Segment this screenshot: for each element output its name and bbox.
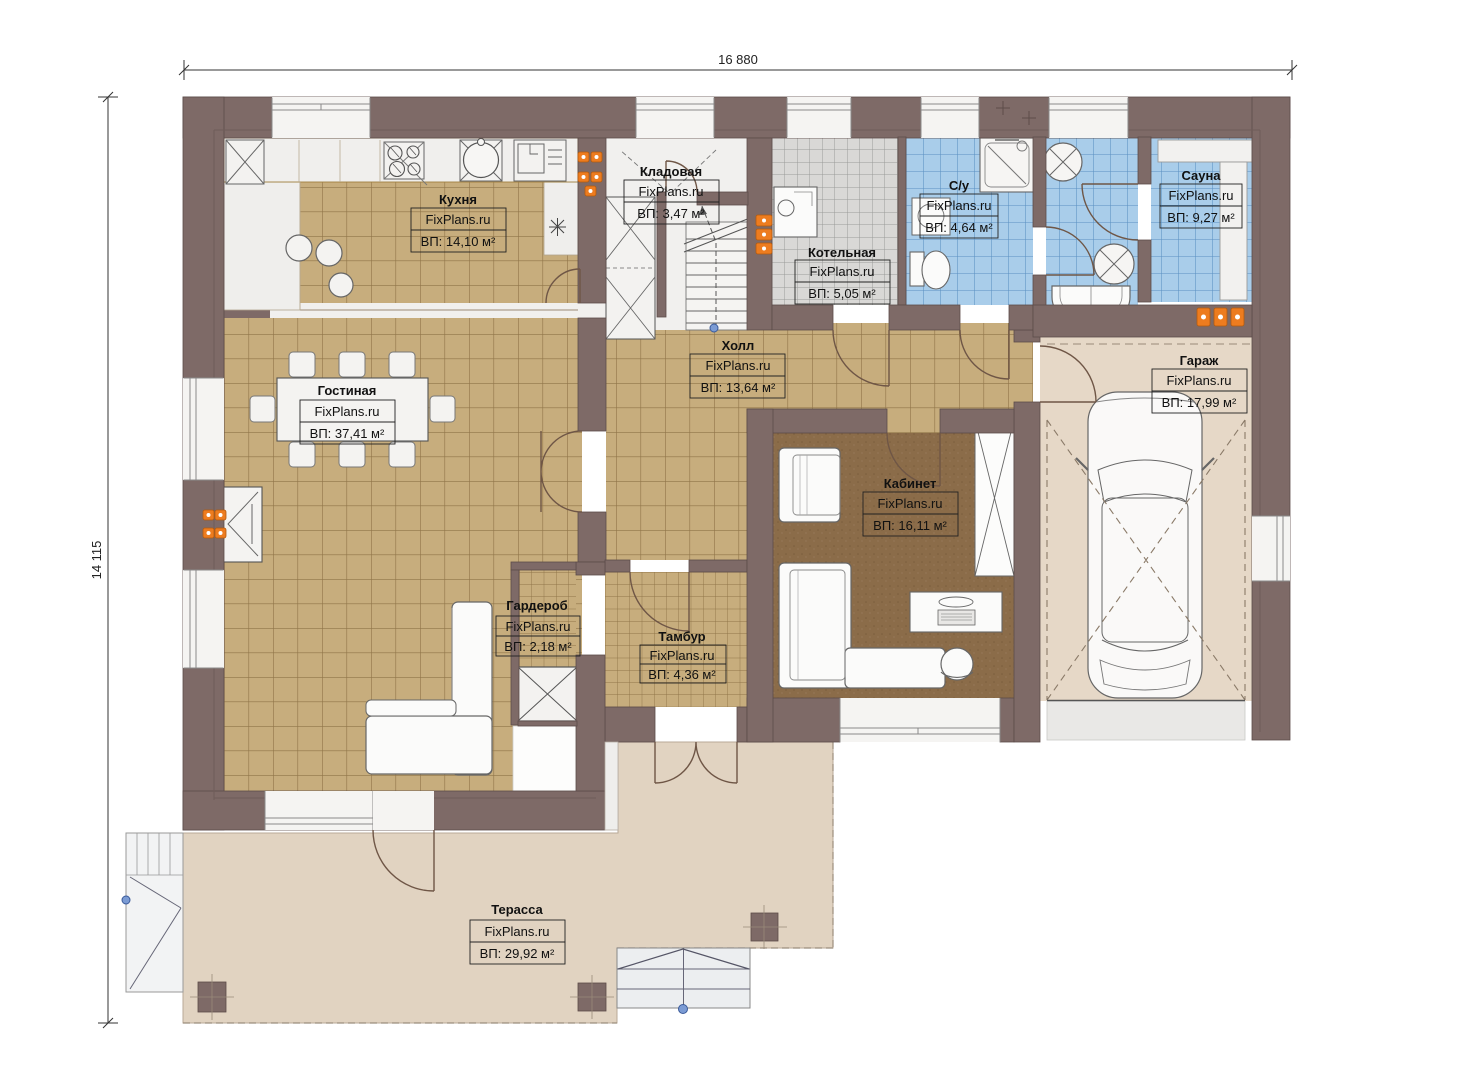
- svg-text:ВП: 4,64 м²: ВП: 4,64 м²: [925, 220, 993, 235]
- svg-text:ВП: 29,92 м²: ВП: 29,92 м²: [480, 946, 555, 961]
- svg-text:FixPlans.ru: FixPlans.ru: [484, 924, 549, 939]
- svg-text:Холл: Холл: [722, 338, 755, 353]
- svg-text:ВП: 13,64 м²: ВП: 13,64 м²: [701, 380, 776, 395]
- svg-text:14 115: 14 115: [89, 541, 104, 580]
- svg-text:FixPlans.ru: FixPlans.ru: [505, 619, 570, 634]
- svg-text:FixPlans.ru: FixPlans.ru: [1166, 373, 1231, 388]
- svg-text:Гостиная: Гостиная: [318, 383, 377, 398]
- svg-text:ВП: 3,47 м²: ВП: 3,47 м²: [637, 206, 705, 221]
- svg-text:FixPlans.ru: FixPlans.ru: [314, 404, 379, 419]
- svg-text:Гараж: Гараж: [1180, 353, 1220, 368]
- svg-text:ВП: 16,11 м²: ВП: 16,11 м²: [873, 518, 947, 533]
- svg-text:Тамбур: Тамбур: [658, 629, 705, 644]
- svg-text:FixPlans.ru: FixPlans.ru: [638, 184, 703, 199]
- svg-text:FixPlans.ru: FixPlans.ru: [649, 648, 714, 663]
- svg-text:Кладовая: Кладовая: [640, 164, 702, 179]
- svg-text:FixPlans.ru: FixPlans.ru: [926, 198, 991, 213]
- svg-text:Котельная: Котельная: [808, 245, 876, 260]
- svg-text:Терасса: Терасса: [491, 902, 543, 917]
- svg-text:Кухня: Кухня: [439, 192, 477, 207]
- svg-text:ВП: 14,10 м²: ВП: 14,10 м²: [421, 234, 496, 249]
- svg-text:FixPlans.ru: FixPlans.ru: [425, 212, 490, 227]
- svg-text:ВП: 37,41 м²: ВП: 37,41 м²: [310, 426, 385, 441]
- svg-text:FixPlans.ru: FixPlans.ru: [809, 264, 874, 279]
- svg-text:С/у: С/у: [949, 178, 970, 193]
- svg-text:ВП: 5,05 м²: ВП: 5,05 м²: [808, 286, 876, 301]
- svg-text:ВП: 17,99 м²: ВП: 17,99 м²: [1162, 395, 1237, 410]
- svg-text:FixPlans.ru: FixPlans.ru: [1168, 188, 1233, 203]
- svg-text:Кабинет: Кабинет: [884, 476, 937, 491]
- svg-text:ВП: 2,18 м²: ВП: 2,18 м²: [504, 639, 572, 654]
- svg-text:Сауна: Сауна: [1181, 168, 1221, 183]
- svg-text:16 880: 16 880: [718, 52, 758, 67]
- svg-text:ВП: 9,27 м²: ВП: 9,27 м²: [1167, 210, 1235, 225]
- svg-text:ВП: 4,36 м²: ВП: 4,36 м²: [648, 667, 716, 682]
- svg-text:FixPlans.ru: FixPlans.ru: [705, 358, 770, 373]
- svg-text:FixPlans.ru: FixPlans.ru: [877, 496, 942, 511]
- svg-text:Гардероб: Гардероб: [506, 598, 567, 613]
